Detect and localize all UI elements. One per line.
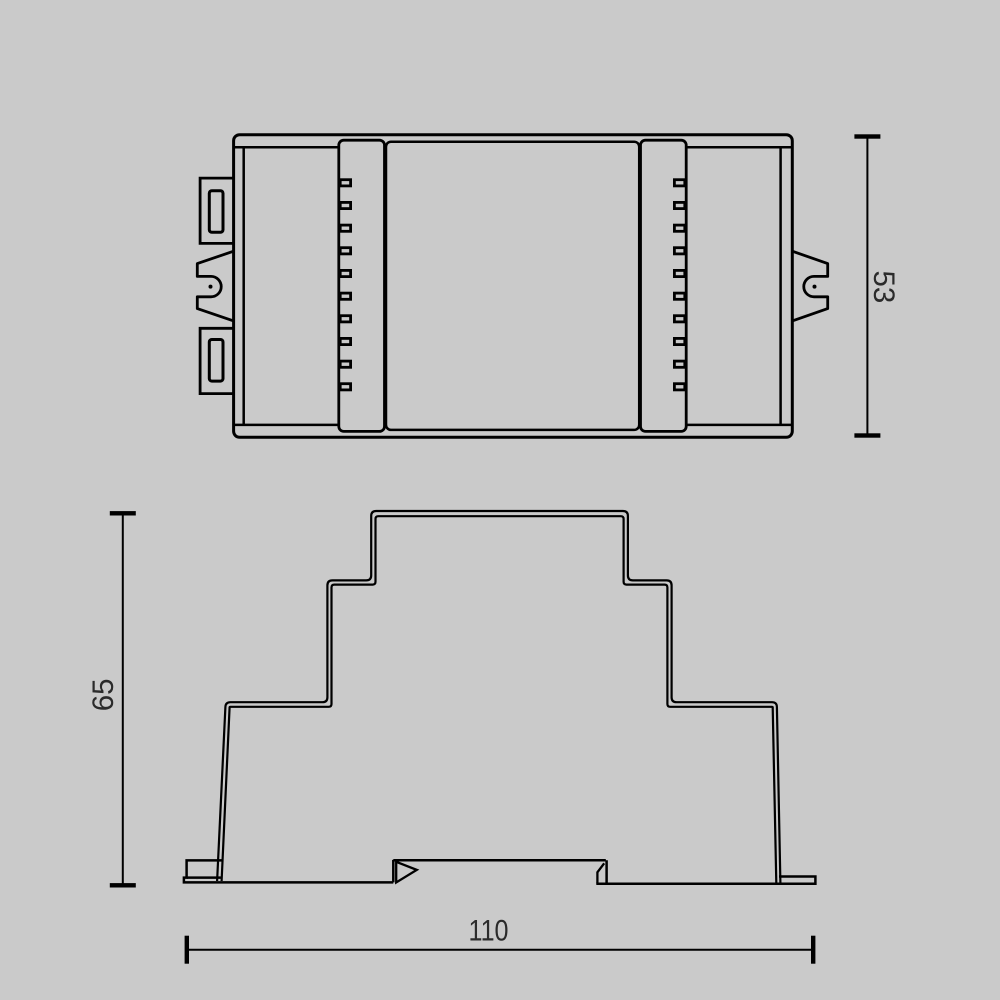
svg-text:110: 110	[469, 914, 509, 947]
svg-text:53: 53	[867, 270, 900, 303]
svg-text:65: 65	[87, 678, 120, 711]
